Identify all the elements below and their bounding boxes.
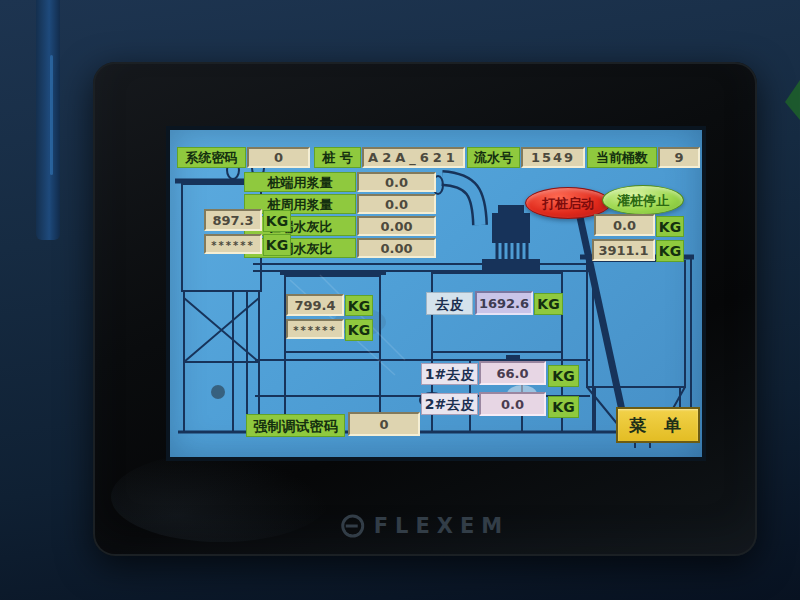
param-value-field[interactable]: 0.00 [357, 216, 436, 236]
hmi-screen: 系统密码 0 桩 号 A2A_621 流水号 1549 当前桶数 9 桩端用浆量… [170, 130, 702, 457]
param-label: 桩端用浆量 [244, 172, 356, 192]
tare-value-display: 1692.6 [475, 291, 533, 315]
kg-unit-badge: KG [263, 210, 291, 232]
menu-button[interactable]: 菜 单 [616, 407, 700, 443]
hopper-current-weight-display: 0.0 [594, 214, 655, 236]
left-tank-hidden-display: ****** [204, 234, 262, 254]
brand-logo: FLEXEM [341, 514, 510, 538]
kg-unit-badge: KG [656, 216, 684, 237]
tare2-label: 2#去皮 [421, 393, 478, 415]
tare1-label: 1#去皮 [421, 363, 478, 385]
param-value-field[interactable]: 0.0 [357, 194, 436, 214]
debug-password-label: 强制调试密码 [246, 414, 345, 437]
pile-number-label: 桩 号 [314, 147, 361, 168]
panel-highlight [50, 55, 53, 175]
hopper-total-weight-display: 3911.1 [592, 239, 655, 261]
serial-number-field[interactable]: 1549 [521, 147, 585, 168]
pile-number-field[interactable]: A2A_621 [362, 147, 465, 168]
kg-unit-badge: KG [345, 295, 373, 316]
system-password-field[interactable]: 0 [247, 147, 310, 168]
kg-unit-badge: KG [345, 319, 373, 341]
tare-label: 去皮 [426, 292, 473, 315]
background-blue-panel [36, 0, 60, 240]
brand-name: FLEXEM [374, 514, 510, 538]
mid-tank-hidden-display: ****** [286, 319, 344, 339]
kg-unit-badge: KG [548, 365, 579, 387]
mid-tank-weight-display: 799.4 [286, 294, 344, 316]
left-tank-weight-display: 897.3 [204, 209, 262, 231]
kg-unit-badge: KG [548, 396, 579, 418]
kg-unit-badge: KG [656, 240, 684, 262]
param-value-field[interactable]: 0.0 [357, 172, 436, 192]
kg-unit-badge: KG [534, 293, 563, 315]
tare1-value-display: 66.0 [479, 361, 546, 385]
debug-password-field[interactable]: 0 [348, 412, 420, 436]
background-green-object [785, 80, 800, 120]
pile-stop-button[interactable]: 灌桩停止 [602, 185, 684, 215]
bucket-count-label: 当前桶数 [587, 147, 657, 168]
system-password-label: 系统密码 [177, 147, 246, 168]
kg-unit-badge: KG [263, 234, 291, 256]
param-value-field[interactable]: 0.00 [357, 238, 436, 258]
serial-number-label: 流水号 [467, 147, 520, 168]
flexem-logo-icon [341, 514, 365, 538]
bucket-count-field[interactable]: 9 [658, 147, 700, 168]
tare2-value-display: 0.0 [479, 392, 546, 416]
